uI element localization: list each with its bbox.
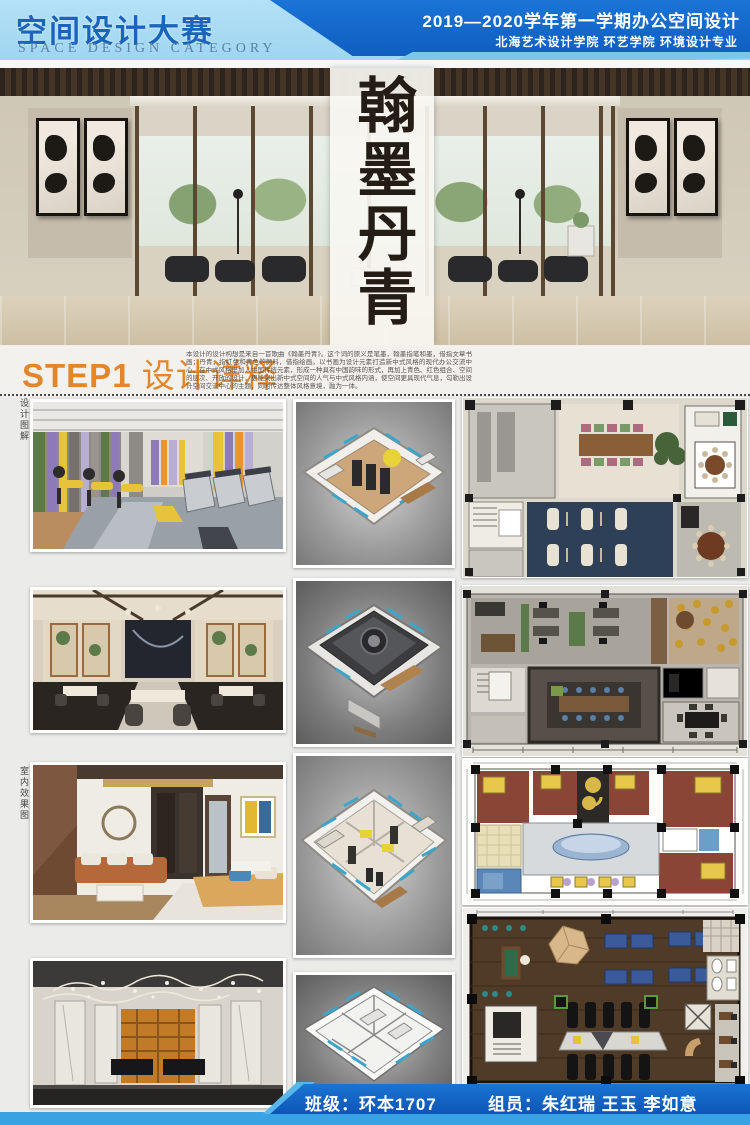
axon-model-3 bbox=[293, 753, 455, 958]
hero-render: 翰墨丹青 bbox=[0, 68, 750, 345]
poster-subtitle: SPACE DESIGN CATEGORY bbox=[18, 41, 277, 57]
render-bedroom bbox=[30, 762, 286, 923]
axon-model-2 bbox=[293, 578, 455, 747]
header-banner: 空间设计大赛 SPACE DESIGN CATEGORY 2019—2020学年… bbox=[0, 0, 750, 68]
floorplan-office bbox=[462, 585, 748, 757]
step1-number: STEP1 bbox=[22, 357, 142, 394]
render-gym bbox=[30, 399, 286, 552]
step1-strip: STEP1 设计详释 本设计的设计构想是来自一首歌曲《翰墨丹青》。这个词的原义是… bbox=[0, 345, 750, 396]
term-line: 2019—2020学年第一学期办公空间设计 bbox=[422, 7, 740, 32]
department-line: 北海艺术设计学院 环艺学院 环境设计专业 bbox=[495, 33, 738, 50]
footer-team: 组员：朱红瑞 王玉 李如意 bbox=[488, 1090, 697, 1115]
floorplan-gym bbox=[462, 907, 748, 1088]
floorplan-suites bbox=[462, 758, 748, 905]
axon-model-1 bbox=[293, 399, 455, 568]
header-bottom-strip bbox=[0, 60, 750, 68]
calligraphy-text: 翰墨丹青 bbox=[330, 74, 434, 345]
render-restaurant bbox=[30, 587, 286, 733]
floorplan-dining bbox=[462, 397, 748, 578]
calligraphy-banner: 翰墨丹青 bbox=[330, 68, 434, 345]
render-lobby bbox=[30, 958, 286, 1108]
footer-class: 班级：环本1707 bbox=[305, 1090, 437, 1115]
poster: 空间设计大赛 SPACE DESIGN CATEGORY 2019—2020学年… bbox=[0, 0, 750, 1125]
step1-paragraph: 本设计的设计构想是来自一首歌曲《翰墨丹青》。这个词的原义是笔墨，翰墨指笔和墨，借… bbox=[186, 351, 472, 389]
